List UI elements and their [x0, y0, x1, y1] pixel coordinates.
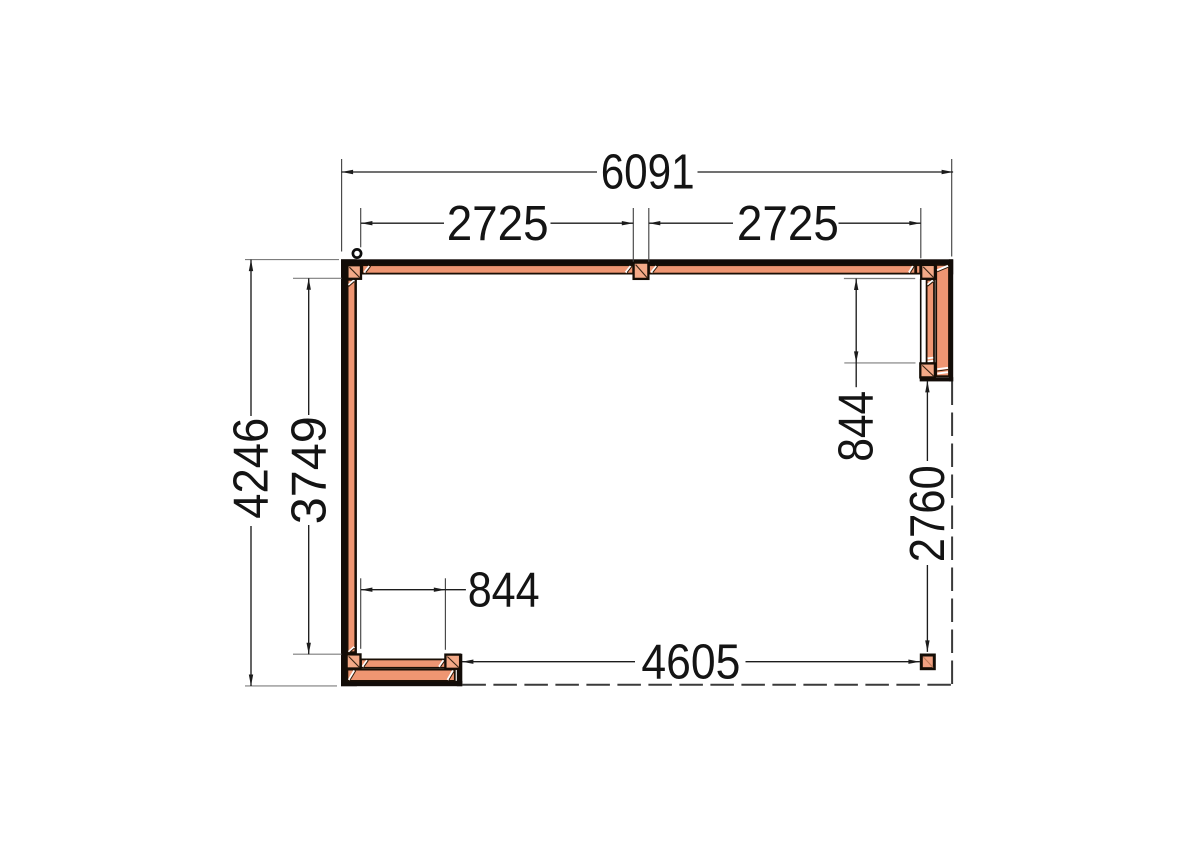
svg-text:2725: 2725: [737, 197, 839, 251]
svg-text:2760: 2760: [901, 465, 955, 562]
svg-text:3749: 3749: [282, 416, 336, 524]
svg-text:844: 844: [468, 563, 540, 617]
svg-text:4605: 4605: [641, 635, 740, 689]
svg-text:4246: 4246: [225, 418, 279, 519]
svg-text:2725: 2725: [447, 197, 549, 251]
svg-text:844: 844: [829, 391, 883, 462]
svg-text:6091: 6091: [601, 146, 695, 200]
